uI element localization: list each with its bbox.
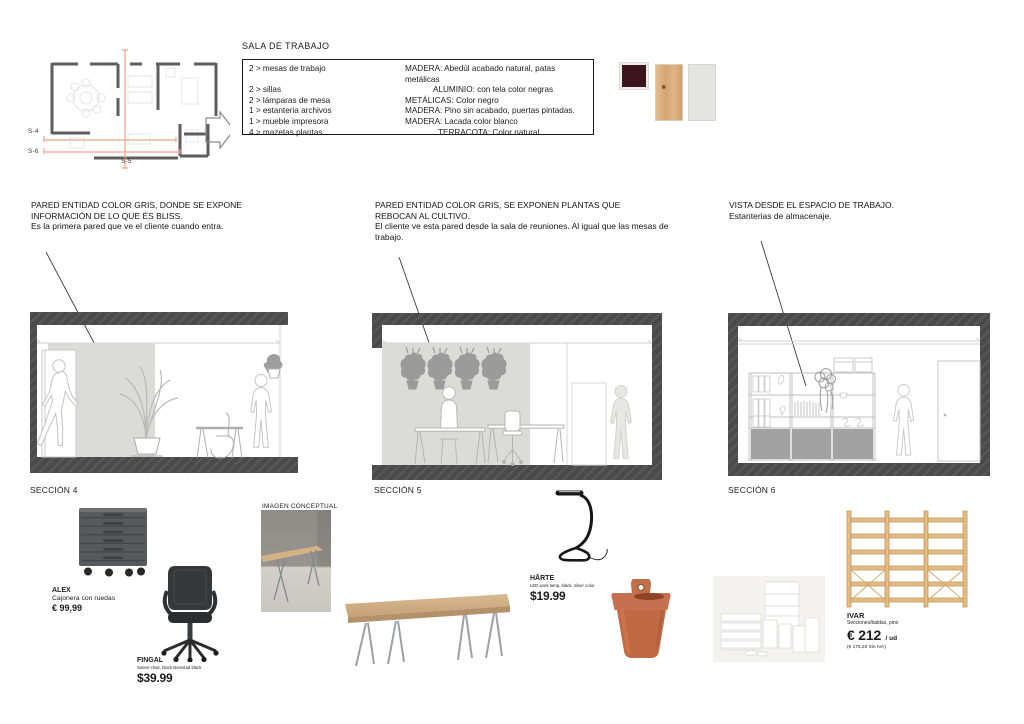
product-price-row: € 212 / ud [847, 627, 898, 645]
spec-qty: 1 > mueble impresora [249, 117, 405, 128]
spec-material: ALUMINIO: con tela color negras [405, 85, 587, 96]
spec-row: 2 > sillas ALUMINIO: con tela color negr… [249, 85, 587, 96]
section-4-label: SECCIÓN 4 [30, 485, 78, 495]
ceiling-track [382, 340, 652, 343]
product-price: $19.99 [530, 589, 594, 603]
hairpin-desk-image [343, 590, 511, 668]
floor-slab [728, 463, 990, 476]
standing-person [894, 384, 914, 455]
spec-material: MADERA: Abedúl acabado natural, patas me… [405, 64, 587, 85]
organizers-photo [713, 576, 825, 662]
gray-cabinet [792, 429, 831, 459]
product-price-unit: / ud [886, 635, 898, 642]
presentation-sheet: S-4 S-6 S-5 SALA DE TRABAJO 2 > mesas de… [0, 0, 1024, 724]
ceiling-slab [372, 313, 657, 325]
seccion-4-drawing [30, 312, 298, 475]
swatch-light-gray [688, 64, 716, 121]
product-name: FINGAL [137, 657, 201, 665]
gray-cabinet [751, 429, 790, 459]
annotation-section5: PARED ENTIDAD COLOR GRIS, SE EXPONEN PLA… [375, 200, 677, 242]
product-name: HÅRTE [530, 575, 594, 583]
storage-boxes [834, 358, 872, 372]
annotation-section6: VISTA DESDE EL ESPACIO DE TRABAJO. Estan… [729, 200, 989, 221]
right-wall [980, 313, 990, 476]
product-price: € 99,99 [52, 603, 115, 614]
spec-row: 4 > mazetas plantas TERRACOTA: Color nat… [249, 128, 587, 139]
gray-cabinet [833, 429, 873, 459]
product-price: $39.99 [137, 671, 201, 685]
harte-lamp-image [548, 487, 608, 570]
spec-qty: 2 > mesas de trabajo [249, 64, 405, 85]
ivar-shelving-image [845, 509, 969, 610]
annotation-body: Es la primera pared que ve el cliente cu… [31, 221, 333, 232]
conceptual-image-label: IMAGEN CONCEPTUAL [262, 503, 337, 510]
plan-furniture [67, 68, 198, 148]
terracotta-pot-image [609, 579, 674, 662]
ceiling-track [738, 338, 980, 344]
ivar-label: IVAR Secciones/baldas, pino € 212 / ud (… [847, 611, 898, 650]
product-price: € 212 [847, 627, 881, 643]
product-desc: LED work lamp, black, silver color [530, 583, 594, 589]
entrance-arrow [206, 112, 230, 148]
product-desc: Cajonera con ruedas [52, 595, 115, 603]
left-wall [30, 312, 37, 473]
section-5-label: SECCIÓN 5 [374, 485, 422, 495]
spec-row: 1 > mueble impresora MADERA: Lacada colo… [249, 117, 587, 128]
conceptual-photo [261, 510, 331, 612]
spec-row: 1 > estanteria archivos MADERA: Pino sin… [249, 106, 587, 117]
ceiling-track [37, 340, 280, 343]
conceptual-photo-drawing [261, 510, 331, 612]
room-title: SALA DE TRABAJO [242, 41, 329, 51]
spec-table: 2 > mesas de trabajo MADERA: Abedúl acab… [242, 59, 594, 135]
right-wall [652, 313, 662, 473]
seccion-5-drawing [372, 313, 662, 480]
floor-slab [372, 465, 662, 480]
product-price-note: (€ 175,20 Sin IVA) [847, 645, 898, 650]
ceiling-slab [30, 312, 288, 325]
alex-label: ALEX Cajonera con ruedas € 99,99 [52, 587, 115, 614]
decor-squiggle [842, 418, 864, 426]
chair [211, 413, 233, 458]
alex-drawer-unit-image [75, 508, 151, 578]
spec-material: MADERA: Pino sin acabado, puertas pintad… [405, 106, 587, 117]
books [795, 401, 819, 416]
floor-slab [31, 457, 298, 473]
spec-qty: 2 > lámparas de mesa [249, 96, 405, 107]
door-frame [572, 383, 606, 465]
plan-label-s4: S-4 [28, 128, 39, 135]
cup [840, 393, 847, 398]
annotation-section4: PARED ENTIDAD COLOR GRIS, DONDE SE EXPON… [31, 200, 333, 232]
plan-label-s6: S-6 [28, 148, 39, 155]
annotation-body: El cliente ve esta pared desde la sala d… [375, 221, 677, 242]
standing-person-silhouette [611, 386, 632, 459]
harte-label: HÅRTE LED work lamp, black, silver color… [530, 575, 594, 603]
spec-material: TERRACOTA: Color natural. [405, 128, 587, 139]
product-name: ALEX [52, 587, 115, 595]
spec-row: 2 > mesas de trabajo MADERA: Abedúl acab… [249, 64, 587, 85]
fingal-chair-image [156, 564, 224, 662]
product-desc: Swivel chair, black Bomstad black [137, 665, 201, 671]
swatch-burgundy [620, 63, 648, 89]
left-wall-stub [372, 313, 382, 348]
spec-qty: 2 > sillas [249, 85, 405, 96]
standing-person [251, 375, 272, 448]
seccion-6-drawing [728, 313, 990, 476]
spec-row: 2 > lámparas de mesa METÁLICAS: Color ne… [249, 96, 587, 107]
door [938, 361, 980, 461]
annotation-heading: PARED ENTIDAD COLOR GRIS, SE EXPONEN PLA… [375, 200, 643, 221]
annotation-body: Estanterias de almacenaje. [729, 211, 989, 222]
ceiling-slab [728, 313, 990, 326]
fingal-label: FINGAL Swivel chair, black Bomstad black… [137, 657, 201, 685]
shelf-plant [815, 369, 836, 414]
organizers-drawing [713, 576, 825, 662]
plan-label-s5: S-5 [121, 158, 132, 165]
annotation-heading: VISTA DESDE EL ESPACIO DE TRABAJO. [729, 200, 989, 211]
product-name: IVAR [847, 611, 898, 620]
swatch-wood [655, 64, 683, 121]
left-wall [728, 313, 738, 476]
storage-shelving [749, 358, 875, 461]
section-6-label: SECCIÓN 6 [728, 485, 776, 495]
plan-section-lines [44, 50, 180, 168]
floor-plan-drawing [30, 38, 230, 178]
spec-material: MADERA: Lacada color blanco [405, 117, 587, 128]
desk [196, 428, 243, 458]
spec-material: METÁLICAS: Color negro [405, 96, 587, 107]
spec-qty: 1 > estanteria archivos [249, 106, 405, 117]
annotation-heading: PARED ENTIDAD COLOR GRIS, DONDE SE EXPON… [31, 200, 299, 221]
spec-qty: 4 > mazetas plantas [249, 128, 405, 139]
binders [753, 375, 785, 427]
